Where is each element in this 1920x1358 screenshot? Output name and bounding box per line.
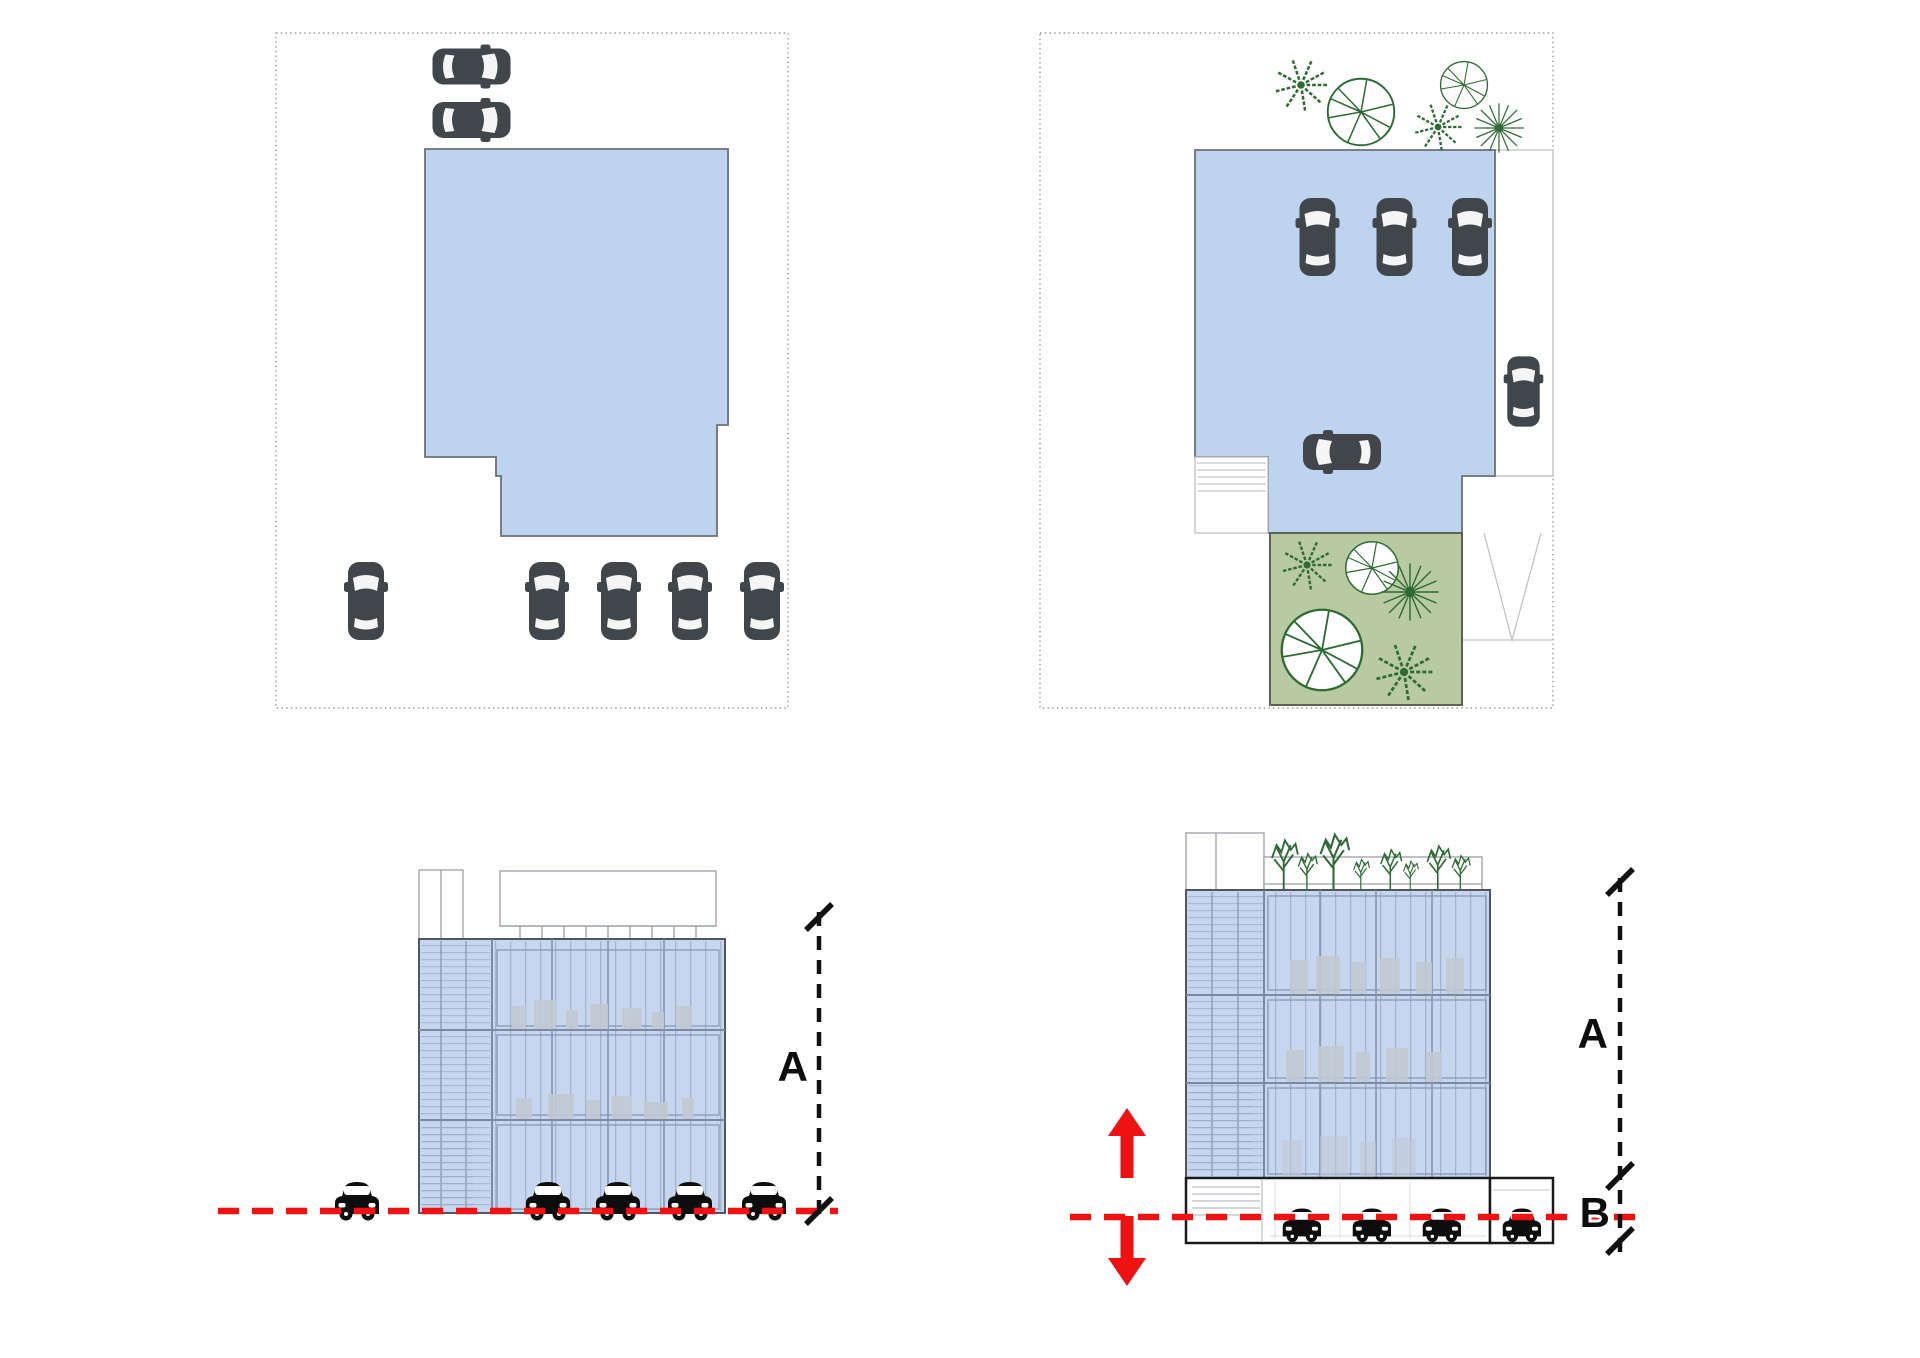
height-dimension-line <box>806 904 832 1224</box>
roof-structure <box>419 870 716 939</box>
site-plan-existing <box>276 33 788 708</box>
tree-palm-icon <box>1415 104 1462 151</box>
elevation-existing: A <box>218 870 838 1224</box>
car-front-icon <box>742 1182 786 1221</box>
site-plan-proposed <box>1040 33 1553 708</box>
label-a: A <box>778 1043 808 1090</box>
car-top-icon <box>597 562 641 640</box>
tree-starburst-icon <box>1474 103 1523 152</box>
car-top-icon <box>433 98 511 142</box>
down-arrow-icon <box>1108 1216 1146 1286</box>
facade <box>419 939 725 1213</box>
tree-umbrella-icon <box>1328 79 1395 146</box>
up-arrow-icon <box>1108 1108 1146 1178</box>
car-top-icon <box>1296 198 1340 276</box>
tree-umbrella-icon <box>1282 610 1363 691</box>
car-top-icon <box>1303 430 1381 474</box>
stairs <box>1195 457 1268 533</box>
elevation-proposed: A B <box>1070 833 1643 1286</box>
car-top-icon <box>1504 356 1544 426</box>
height-dimension-line <box>1607 869 1633 1254</box>
facade <box>1186 890 1490 1178</box>
car-top-icon <box>668 562 712 640</box>
building-footprint <box>425 149 728 536</box>
car-top-icon <box>1373 198 1417 276</box>
tree-palm-icon <box>1276 60 1327 111</box>
stairs <box>1192 1090 1252 1175</box>
car-top-icon <box>1448 198 1492 276</box>
car-top-icon <box>525 562 569 640</box>
label-a: A <box>1578 1010 1608 1057</box>
tree-starburst-icon <box>1381 563 1438 620</box>
diagram-canvas: A <box>0 0 1920 1358</box>
car-top-icon <box>344 562 388 640</box>
tree-umbrella-icon <box>1441 62 1488 109</box>
stairs <box>423 1125 473 1209</box>
car-front-icon <box>335 1182 379 1221</box>
label-b: B <box>1580 1189 1610 1236</box>
diagram-svg: A <box>0 0 1920 1358</box>
car-top-icon <box>433 45 511 89</box>
car-top-icon <box>740 562 784 640</box>
tree-umbrella-icon <box>1346 542 1399 595</box>
